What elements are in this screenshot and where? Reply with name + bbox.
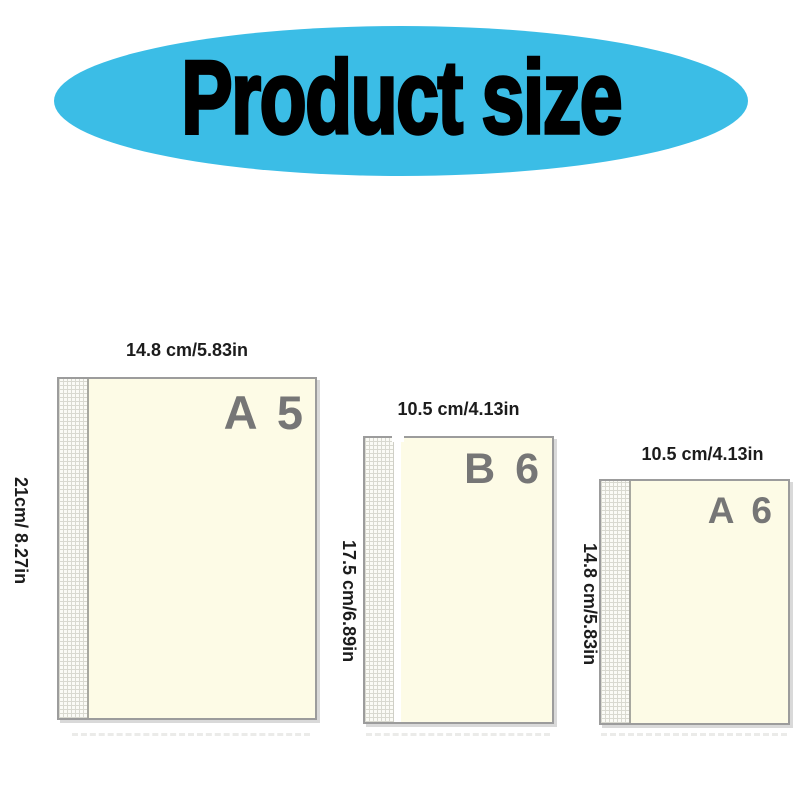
a6-height-dimension-label: 14.8 cm/5.83in xyxy=(581,543,599,665)
banner-title: Product size xyxy=(181,46,621,156)
a5-spine-grid xyxy=(59,379,89,718)
a6-width-dimension-label: 10.5 cm/4.13in xyxy=(607,444,798,464)
a6-spine-grid xyxy=(601,481,631,723)
b6-ghost-dash-line xyxy=(366,733,550,736)
b6-notebook: B 6 xyxy=(363,436,554,724)
a6-notebook: A 6 xyxy=(599,479,790,725)
a5-size-letter: A 5 xyxy=(224,389,307,436)
b6-width-dimension-label: 10.5 cm/4.13in xyxy=(363,399,554,419)
b6-top-notch xyxy=(392,435,404,442)
product-size-infographic: Product size 14.8 cm/5.83in 21cm/ 8.27in… xyxy=(0,0,800,800)
a5-width-dimension-label: 14.8 cm/5.83in xyxy=(57,340,317,360)
b6-spine-grid xyxy=(365,438,394,722)
a6-size-letter: A 6 xyxy=(708,492,776,529)
b6-spine-gap xyxy=(394,438,401,722)
a5-notebook: A 5 xyxy=(57,377,317,720)
b6-size-letter: B 6 xyxy=(464,448,543,491)
a5-ghost-dash-line xyxy=(72,733,310,736)
a6-ghost-dash-line xyxy=(601,733,787,736)
banner-ellipse: Product size xyxy=(54,26,748,176)
b6-height-dimension-label: 17.5 cm/6.89in xyxy=(340,540,358,662)
a5-height-dimension-label: 21cm/ 8.27in xyxy=(12,477,30,584)
